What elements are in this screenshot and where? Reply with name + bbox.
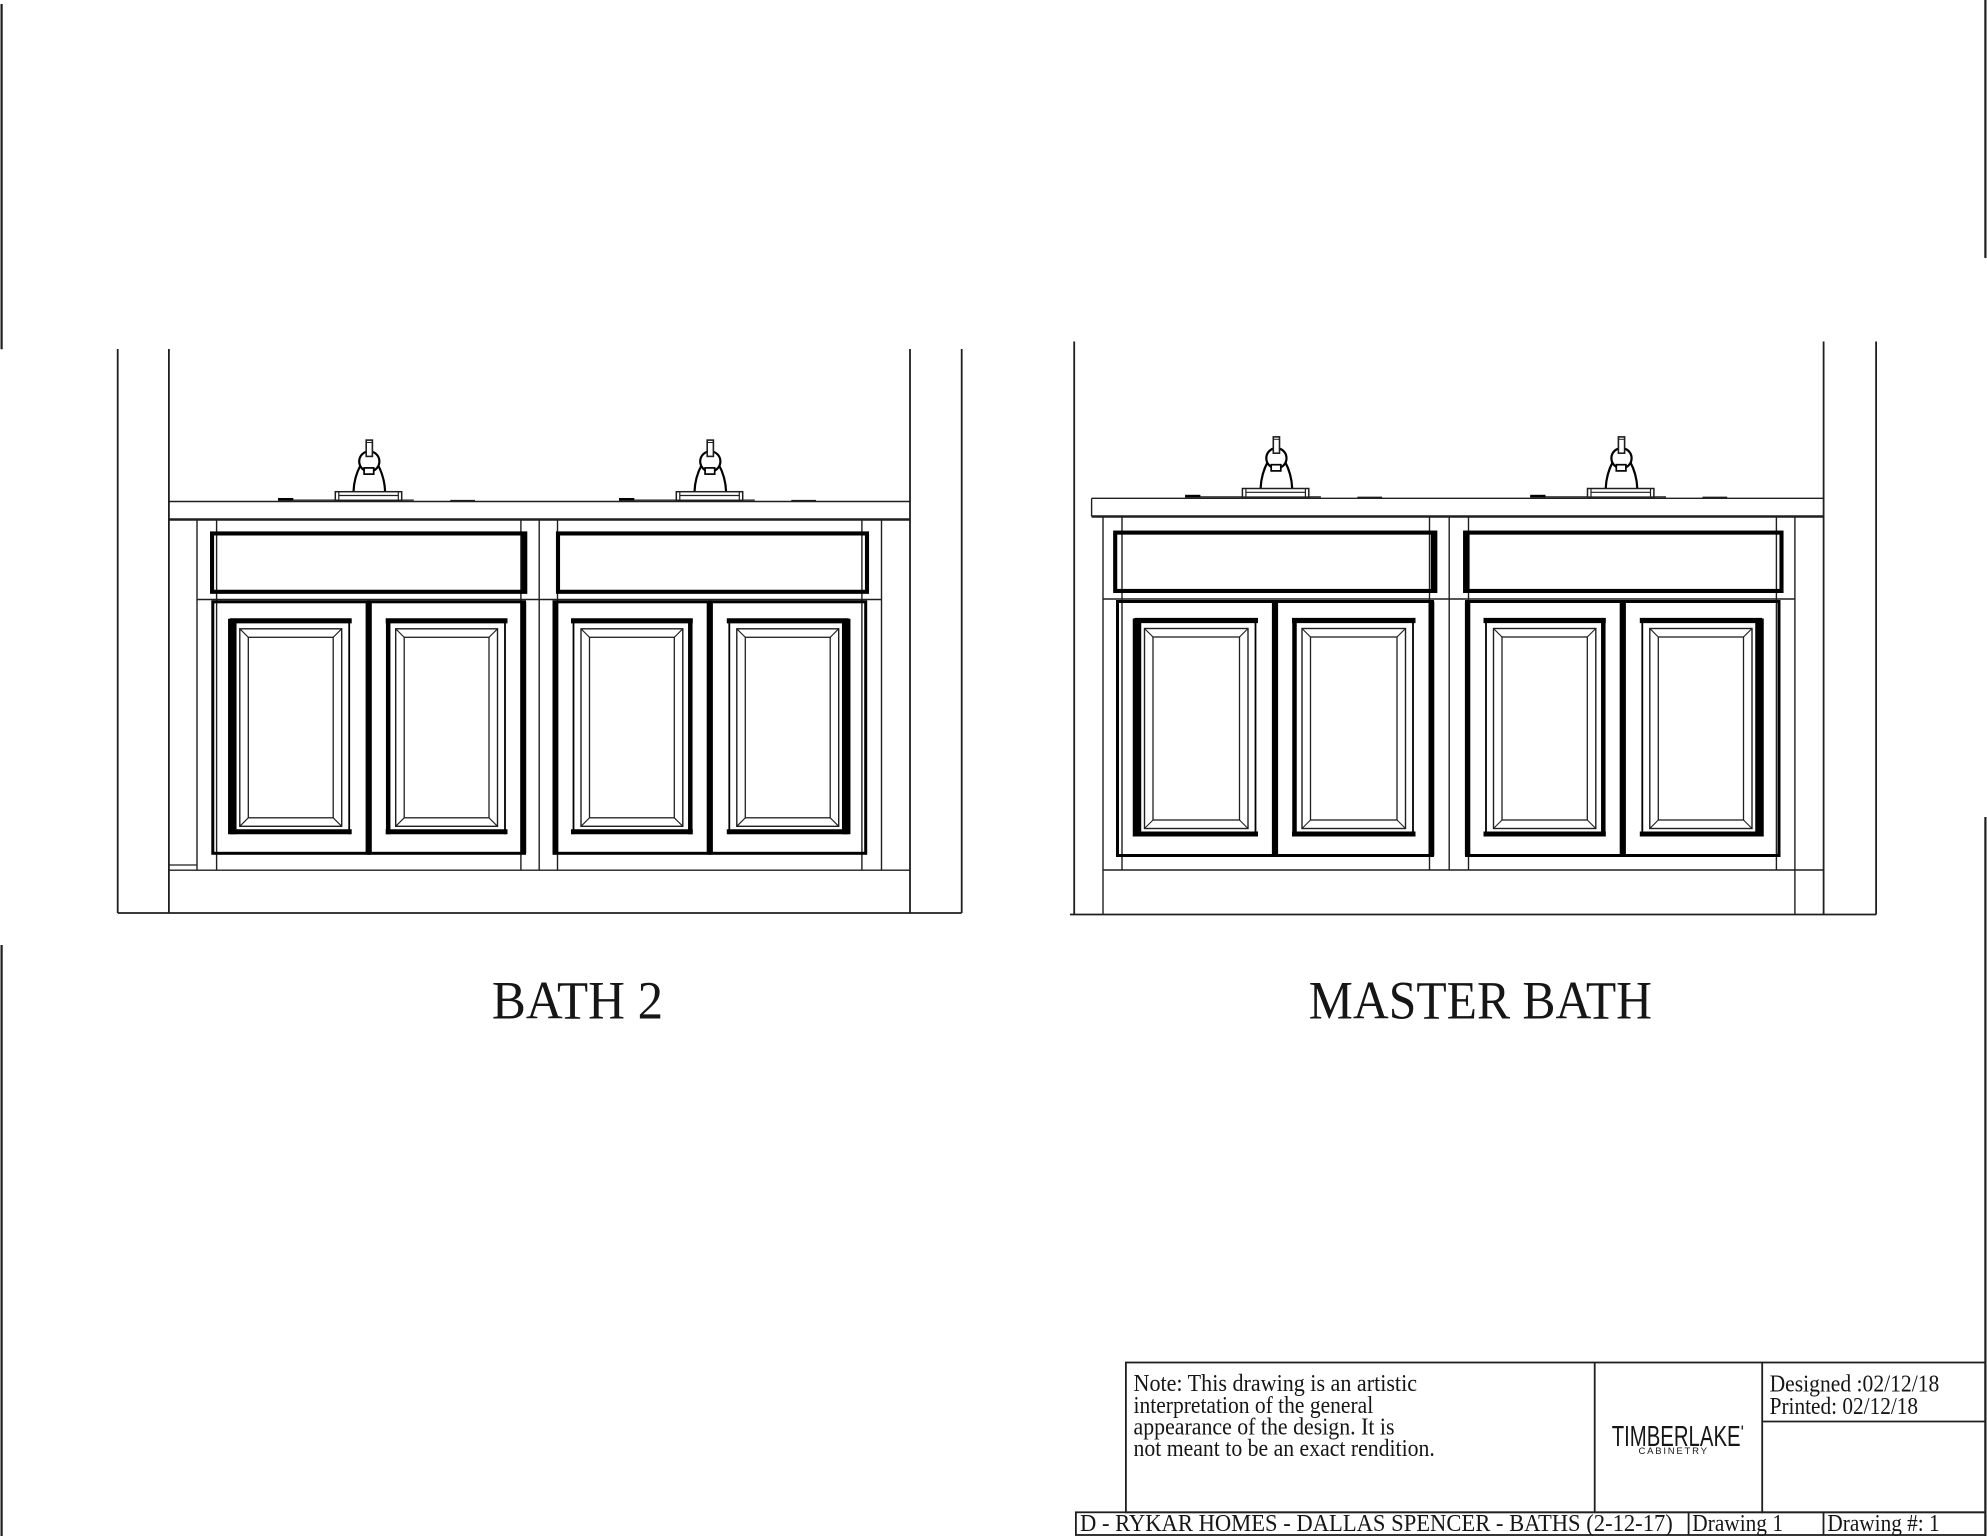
svg-text:Printed: 02/12/18: Printed: 02/12/18 (1770, 1394, 1919, 1420)
svg-text:Drawing #: 1: Drawing #: 1 (1827, 1511, 1939, 1536)
svg-text:MASTER BATH: MASTER BATH (1309, 970, 1652, 1030)
svg-text:CABINETRY: CABINETRY (1639, 1446, 1709, 1457)
svg-text:D - RYKAR HOMES - DALLAS SPENC: D - RYKAR HOMES - DALLAS SPENCER - BATHS… (1080, 1511, 1673, 1536)
svg-text:Drawing 1: Drawing 1 (1692, 1511, 1783, 1536)
svg-text:not meant to be an exact rendi: not meant to be an exact rendition. (1134, 1436, 1435, 1462)
svg-text:BATH 2: BATH 2 (492, 971, 663, 1031)
